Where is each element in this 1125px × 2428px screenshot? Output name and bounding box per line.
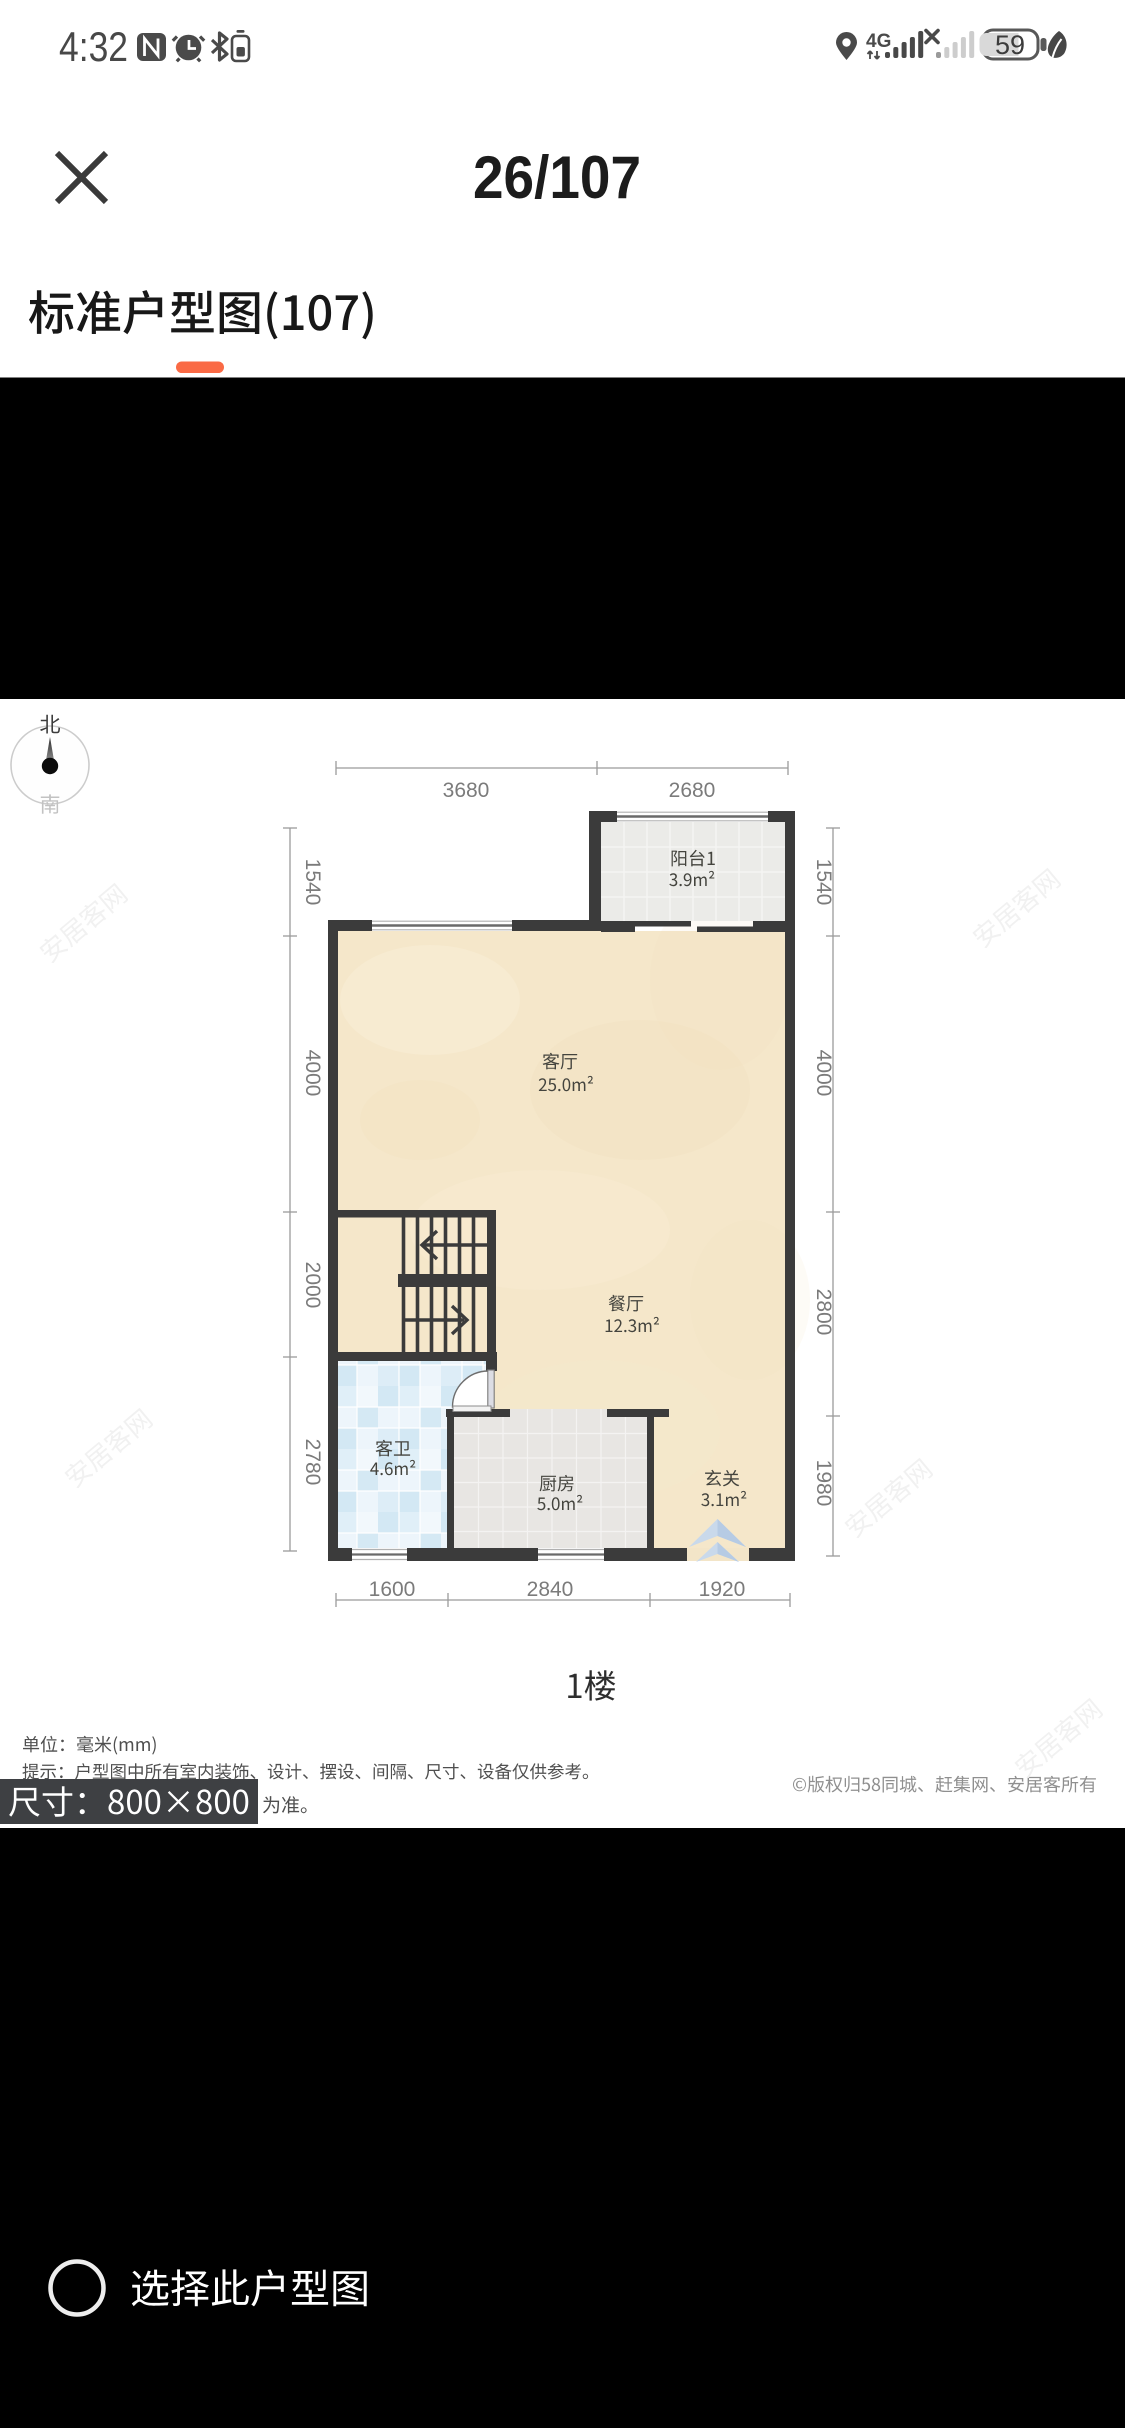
svg-text:2680: 2680	[669, 779, 716, 802]
svg-text:4G: 4G	[866, 31, 891, 52]
svg-text:4000: 4000	[301, 1050, 324, 1097]
svg-text:1600: 1600	[369, 1578, 416, 1601]
svg-text:2780: 2780	[301, 1439, 324, 1486]
svg-text:1980: 1980	[812, 1460, 835, 1507]
svg-text:3680: 3680	[443, 779, 490, 802]
svg-text:2000: 2000	[301, 1262, 324, 1309]
svg-text:59: 59	[995, 30, 1025, 60]
svg-text:2800: 2800	[812, 1289, 835, 1336]
svg-text:2840: 2840	[527, 1578, 574, 1601]
svg-text:1540: 1540	[812, 859, 835, 906]
svg-text:1540: 1540	[301, 859, 324, 906]
svg-text:26/107: 26/107	[473, 144, 641, 211]
svg-text:1920: 1920	[699, 1578, 746, 1601]
svg-text:4:32: 4:32	[59, 23, 128, 70]
svg-text:4000: 4000	[812, 1050, 835, 1097]
